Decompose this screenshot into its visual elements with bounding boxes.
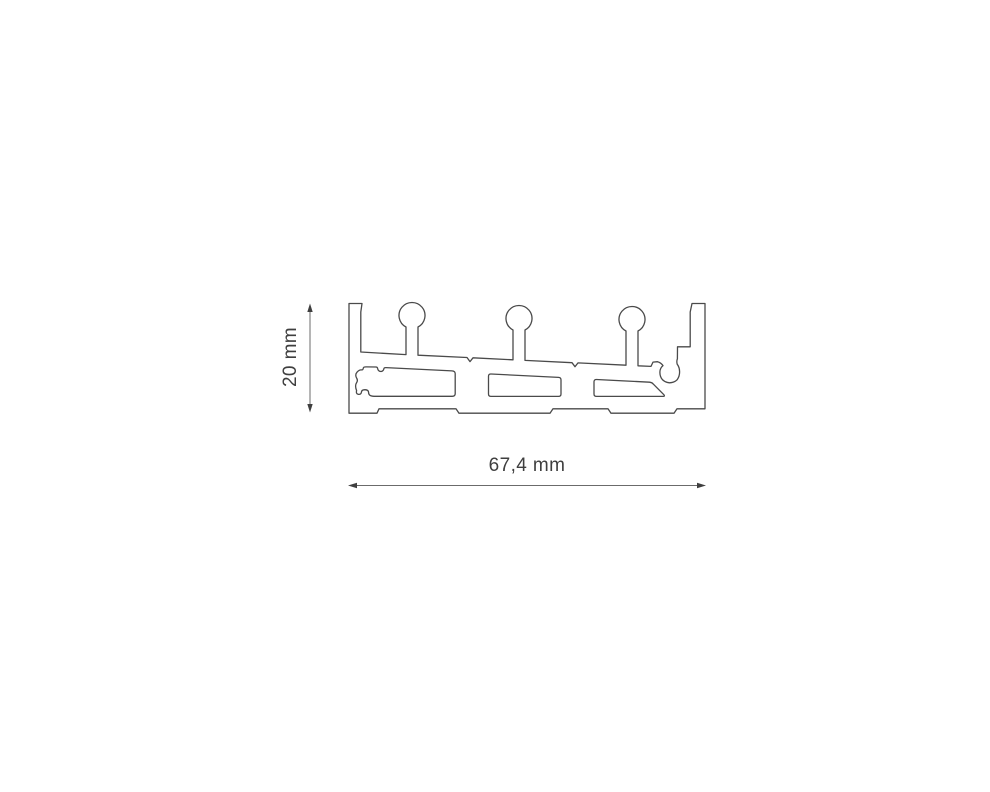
left-cavity-with-screw-port	[356, 367, 456, 396]
arrow-up-icon	[307, 304, 312, 313]
height-dimension	[307, 304, 312, 413]
height-dimension-label: 20 mm	[280, 327, 302, 387]
width-dimension	[348, 483, 706, 488]
middle-cavity	[489, 374, 562, 396]
arrow-right-icon	[697, 483, 706, 488]
arrow-left-icon	[348, 483, 357, 488]
profile-outline	[349, 302, 705, 413]
right-cavity	[594, 379, 664, 396]
drawing-canvas: 20 mm 67,4 mm	[0, 0, 990, 792]
profile-drawing	[0, 0, 990, 792]
arrow-down-icon	[307, 404, 312, 413]
width-dimension-label: 67,4 mm	[489, 455, 566, 477]
